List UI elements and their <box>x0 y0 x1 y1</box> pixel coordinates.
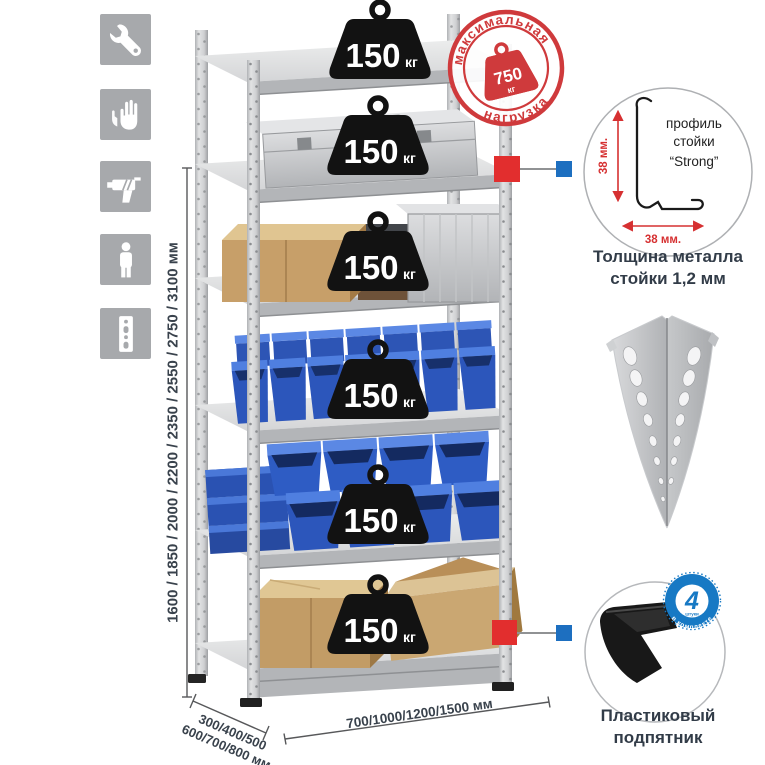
profile-caption-line2: стойки 1,2 мм <box>583 268 753 290</box>
callout-top <box>494 156 572 182</box>
load-badge-unit: кг <box>403 266 416 282</box>
load-badge-2: 150 кг <box>327 98 428 175</box>
load-badge-value: 150 <box>343 249 398 286</box>
profile-label-2: стойки <box>673 134 714 149</box>
plastic-foot-front-right <box>492 682 514 691</box>
load-badge-value: 150 <box>345 37 400 74</box>
profile-dim-horizontal: 38 мм. <box>645 234 681 246</box>
callout-bottom <box>492 620 572 645</box>
foot-caption-line2: подпятник <box>592 727 724 749</box>
profile-caption-line1: Толщина металла <box>583 246 753 268</box>
load-badge-1: 150 кг <box>329 2 430 79</box>
load-badge-value: 150 <box>343 612 398 649</box>
angle-post-image <box>606 316 719 528</box>
foot-caption-line1: Пластиковый <box>592 705 724 727</box>
red-marker-top <box>494 156 520 182</box>
profile-label-3: “Strong” <box>670 154 719 169</box>
quantity-badge: 4 штуки в комплекте <box>664 573 721 632</box>
blue-marker-bottom <box>556 625 572 641</box>
red-marker-bottom <box>492 620 517 645</box>
rack-illustration: 150 кг 150 кг 150 кг 150 кг 150 кг 150 к… <box>0 0 765 765</box>
infographic-shelving-rack: 150 кг 150 кг 150 кг 150 кг 150 кг 150 к… <box>0 0 765 765</box>
load-badge-unit: кг <box>403 519 416 535</box>
blue-marker-top <box>556 161 572 177</box>
load-badge-unit: кг <box>403 629 416 645</box>
load-badge-value: 150 <box>343 377 398 414</box>
profile-label-1: профиль <box>666 116 722 131</box>
load-badge-unit: кг <box>405 54 418 70</box>
load-badge-unit: кг <box>403 150 416 166</box>
height-dimension-line <box>182 168 192 697</box>
profile-dim-vertical: 38 мм. <box>598 138 610 174</box>
plastic-foot-front-left <box>240 698 262 707</box>
foot-caption: Пластиковый подпятник <box>592 705 724 749</box>
load-badge-unit: кг <box>403 394 416 410</box>
load-badge-value: 150 <box>343 133 398 170</box>
profile-caption: Толщина металла стойки 1,2 мм <box>583 246 753 290</box>
profile-detail-circle: 38 мм. 38 мм. профиль стойки “Strong” <box>584 88 752 256</box>
height-dimension-label: 1600 / 1850 / 2000 / 2200 / 2350 / 2550 … <box>165 168 182 698</box>
quantity-sub: штуки <box>685 612 699 617</box>
load-badge-value: 150 <box>343 502 398 539</box>
